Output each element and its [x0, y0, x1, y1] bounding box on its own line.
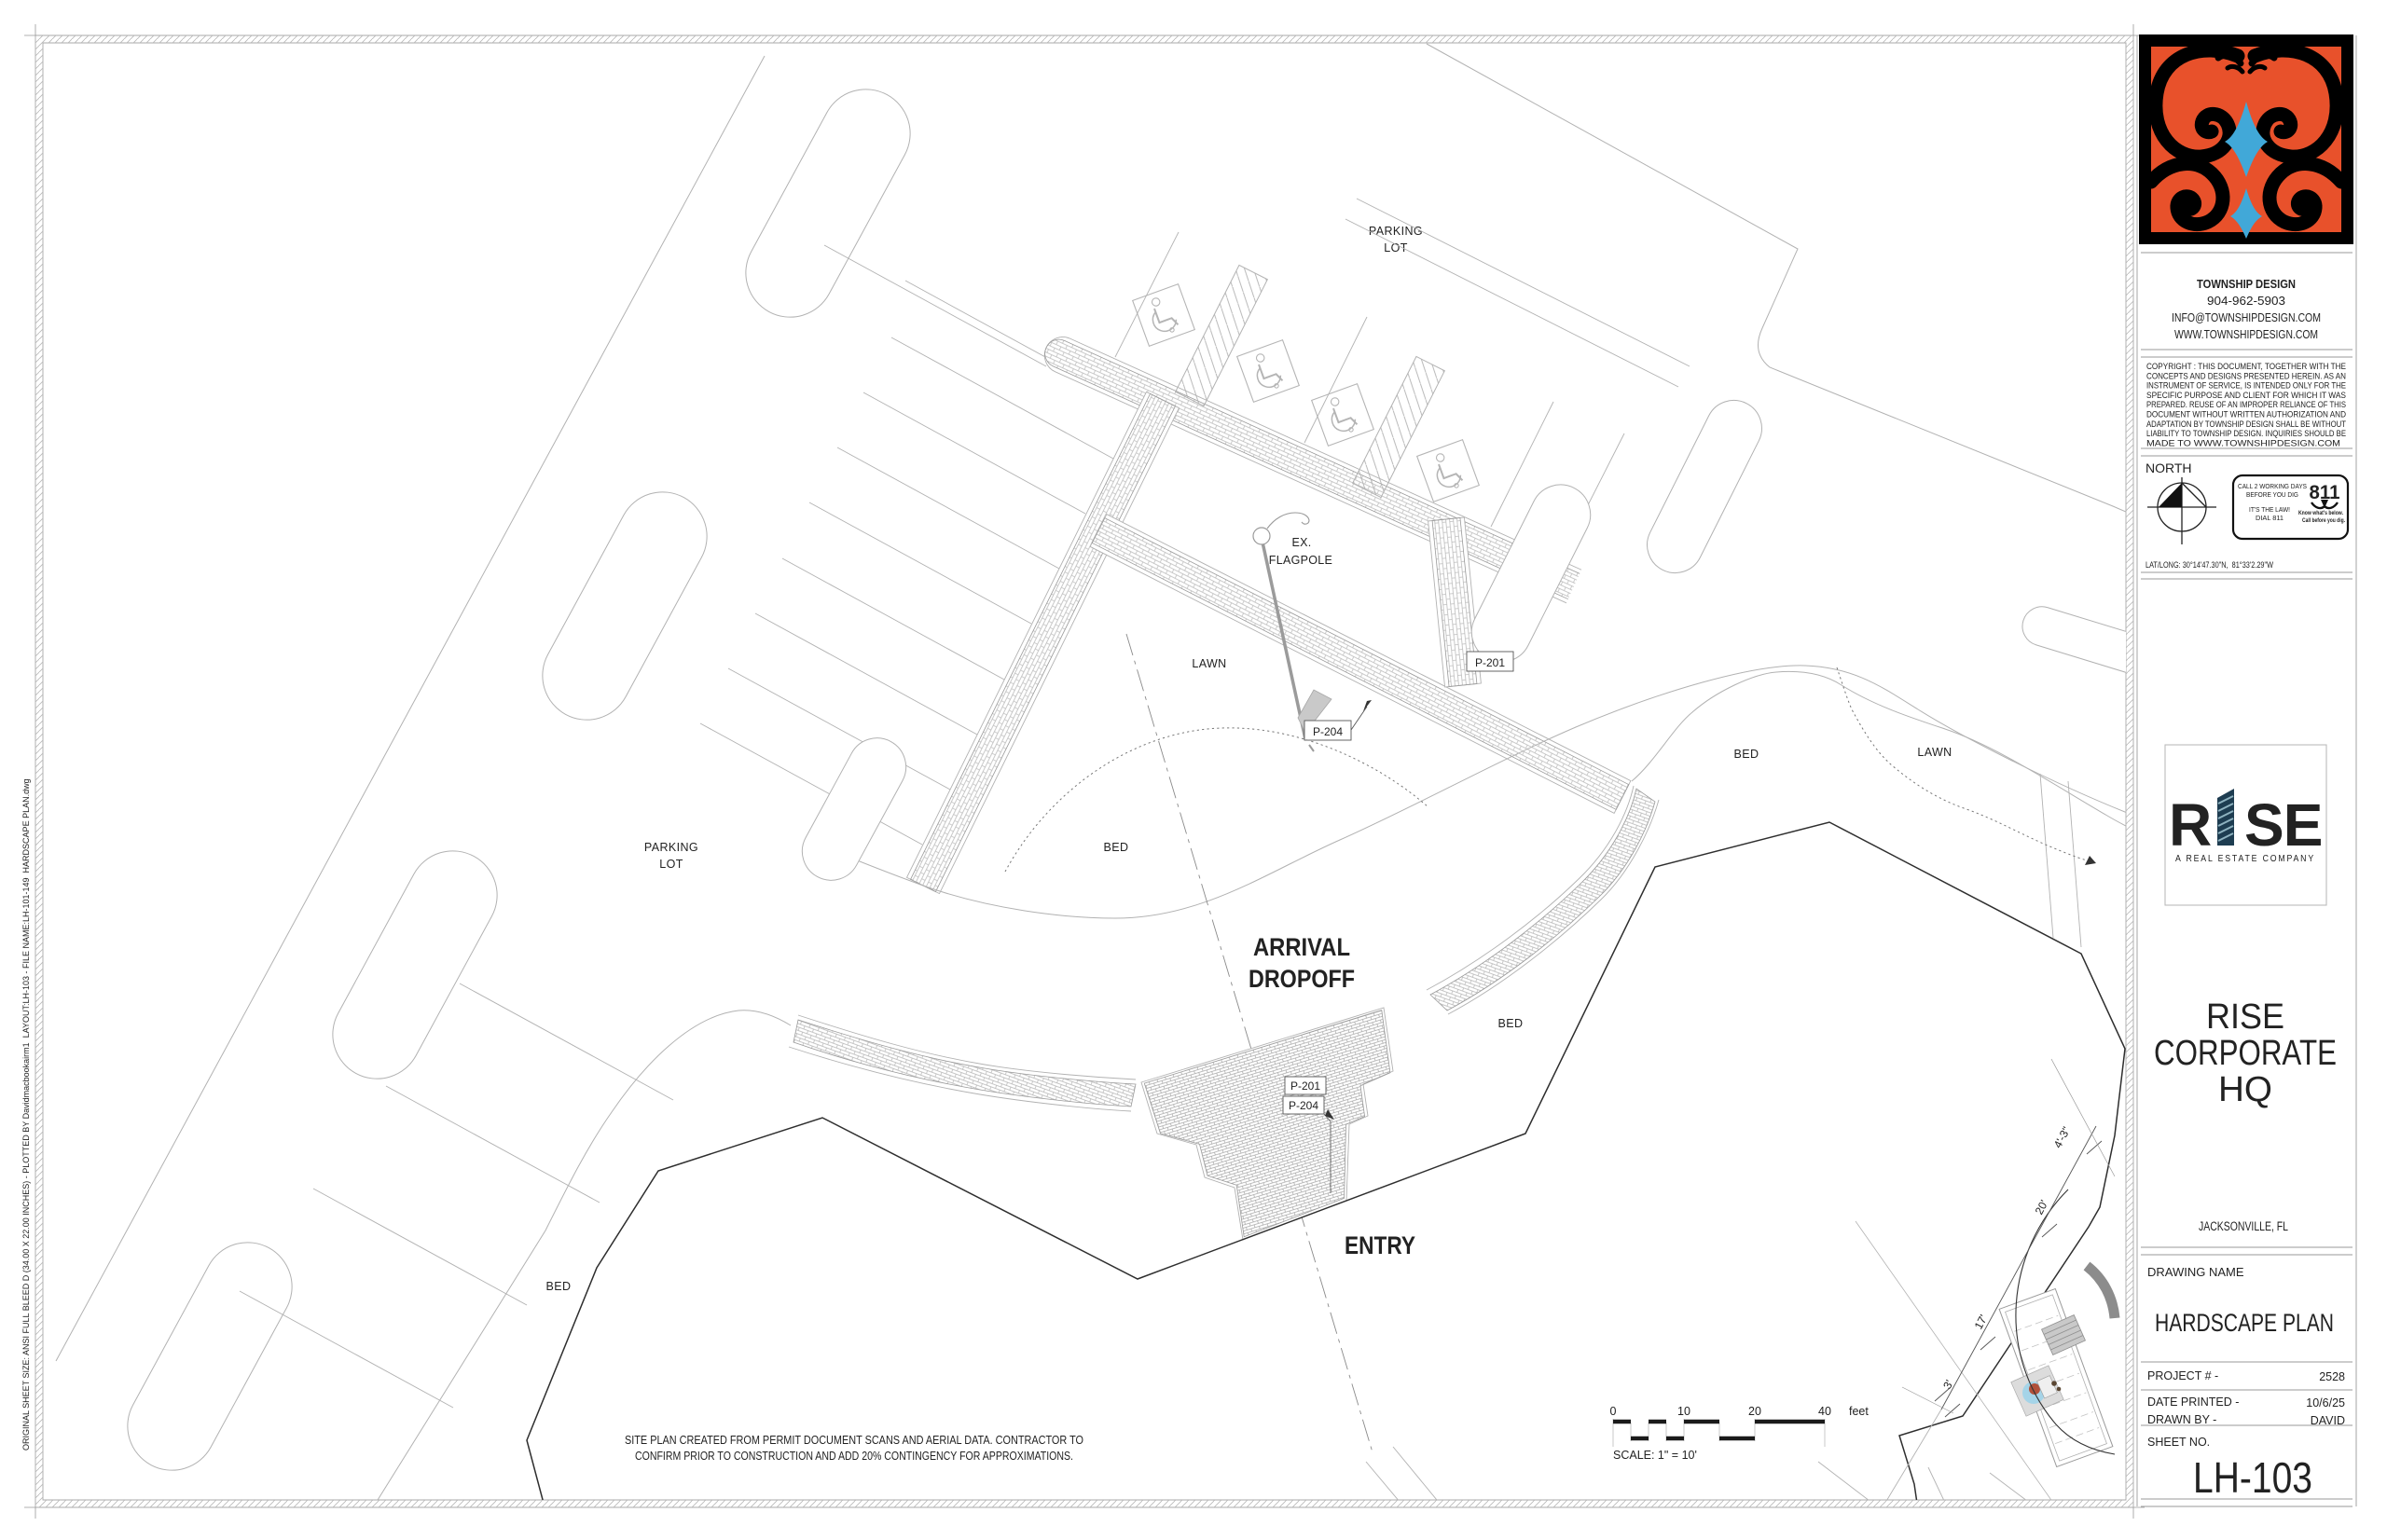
svg-text:P-201: P-201: [1290, 1079, 1320, 1093]
svg-text:SCALE: 1" = 10': SCALE: 1" = 10': [1613, 1449, 1697, 1462]
svg-text:CONFIRM PRIOR TO CONSTRUCTION: CONFIRM PRIOR TO CONSTRUCTION AND ADD 20…: [635, 1449, 1073, 1463]
svg-text:904-962-5903: 904-962-5903: [2207, 295, 2285, 308]
svg-text:CALL 2 WORKING DAYS: CALL 2 WORKING DAYS: [2238, 484, 2307, 490]
svg-text:HQ: HQ: [2218, 1070, 2272, 1109]
svg-text:0: 0: [1610, 1405, 1617, 1418]
svg-text:IT'S THE LAW!: IT'S THE LAW!: [2249, 507, 2290, 514]
svg-text:LH-103: LH-103: [2193, 1453, 2312, 1502]
svg-text:ENTRY: ENTRY: [1345, 1231, 1415, 1259]
svg-text:P-204: P-204: [1289, 1099, 1318, 1112]
svg-text:NORTH: NORTH: [2146, 461, 2192, 475]
svg-text:INFO@TOWNSHIPDESIGN.COM: INFO@TOWNSHIPDESIGN.COM: [2172, 311, 2321, 324]
svg-text:BED: BED: [546, 1280, 572, 1293]
svg-text:A REAL ESTATE COMPANY: A REAL ESTATE COMPANY: [2175, 853, 2315, 864]
svg-text:HARDSCAPE PLAN: HARDSCAPE PLAN: [2155, 1309, 2334, 1337]
svg-text:2528: 2528: [2319, 1370, 2345, 1383]
svg-text:PARKING: PARKING: [644, 841, 698, 854]
svg-text:LOT: LOT: [1384, 241, 1408, 254]
svg-text:DROPOFF: DROPOFF: [1249, 965, 1355, 993]
svg-text:SHEET NO.: SHEET NO.: [2147, 1436, 2210, 1449]
svg-text:ARRIVAL: ARRIVAL: [1253, 933, 1350, 961]
svg-text:BEFORE YOU DIG: BEFORE YOU DIG: [2246, 492, 2298, 499]
svg-text:CORPORATE: CORPORATE: [2154, 1034, 2337, 1073]
svg-text:10: 10: [1677, 1405, 1690, 1418]
svg-text:RISE: RISE: [2206, 997, 2284, 1037]
svg-text:LOT: LOT: [659, 858, 683, 871]
svg-text:MADE TO WWW.TOWNSHIPDESIGN.COM: MADE TO WWW.TOWNSHIPDESIGN.COM: [2146, 438, 2340, 448]
svg-text:feet: feet: [1849, 1405, 1869, 1418]
svg-text:P-204: P-204: [1313, 725, 1343, 738]
svg-text:P-201: P-201: [1475, 656, 1505, 669]
svg-text:BED: BED: [1498, 1017, 1524, 1030]
svg-text:DRAWN BY -: DRAWN BY -: [2147, 1413, 2216, 1426]
svg-text:JACKSONVILLE, FL: JACKSONVILLE, FL: [2199, 1219, 2288, 1233]
svg-text:20: 20: [1748, 1405, 1761, 1418]
svg-text:LAWN: LAWN: [1192, 657, 1226, 670]
svg-text:PARKING: PARKING: [1369, 225, 1423, 238]
svg-text:Know what's below.: Know what's below.: [2298, 510, 2343, 516]
svg-text:10/6/25: 10/6/25: [2306, 1396, 2345, 1409]
svg-text:BED: BED: [1104, 841, 1129, 854]
svg-text:SE: SE: [2244, 791, 2322, 859]
svg-text:ORIGINAL SHEET SIZE: ANSI FULL: ORIGINAL SHEET SIZE: ANSI FULL BLEED D (…: [21, 778, 31, 1451]
svg-text:LAT/LONG: 30°14'47.30"N, 81°3: LAT/LONG: 30°14'47.30"N, 81°33'2.29"W: [2146, 560, 2273, 570]
svg-text:TOWNSHIP DESIGN: TOWNSHIP DESIGN: [2197, 277, 2296, 291]
svg-text:40: 40: [1818, 1405, 1831, 1418]
svg-text:DRAWING NAME: DRAWING NAME: [2147, 1265, 2244, 1279]
svg-text:DAVID: DAVID: [2311, 1414, 2345, 1427]
svg-text:BED: BED: [1734, 748, 1759, 761]
svg-text:SITE PLAN CREATED FROM PERMIT: SITE PLAN CREATED FROM PERMIT DOCUMENT S…: [625, 1433, 1083, 1447]
svg-text:EX.: EX.: [1291, 536, 1311, 549]
svg-text:WWW.TOWNSHIPDESIGN.COM: WWW.TOWNSHIPDESIGN.COM: [2174, 328, 2318, 341]
svg-text:FLAGPOLE: FLAGPOLE: [1269, 554, 1332, 567]
svg-text:LAWN: LAWN: [1917, 746, 1952, 759]
svg-text:PROJECT # -: PROJECT # -: [2147, 1369, 2218, 1382]
svg-text:DATE PRINTED -: DATE PRINTED -: [2147, 1396, 2239, 1409]
svg-text:Call before you dig.: Call before you dig.: [2302, 517, 2345, 524]
svg-text:DIAL 811: DIAL 811: [2256, 516, 2284, 522]
svg-text:R: R: [2169, 791, 2211, 859]
